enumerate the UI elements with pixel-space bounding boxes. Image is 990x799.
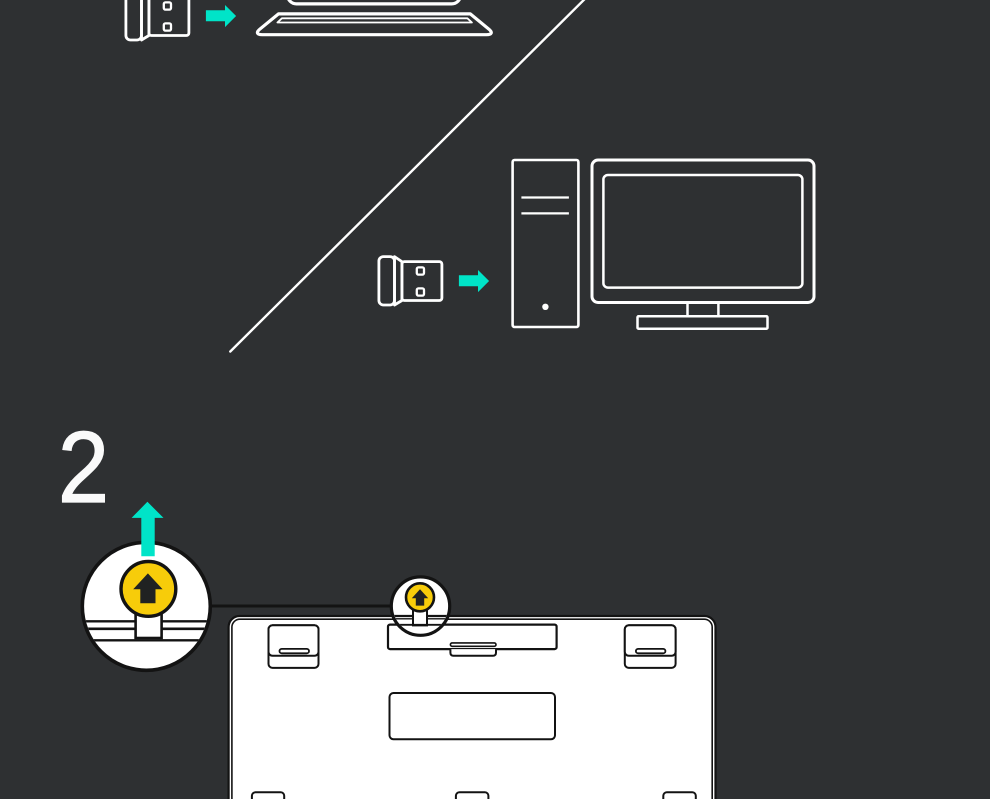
svg-text:2: 2 bbox=[58, 412, 109, 524]
